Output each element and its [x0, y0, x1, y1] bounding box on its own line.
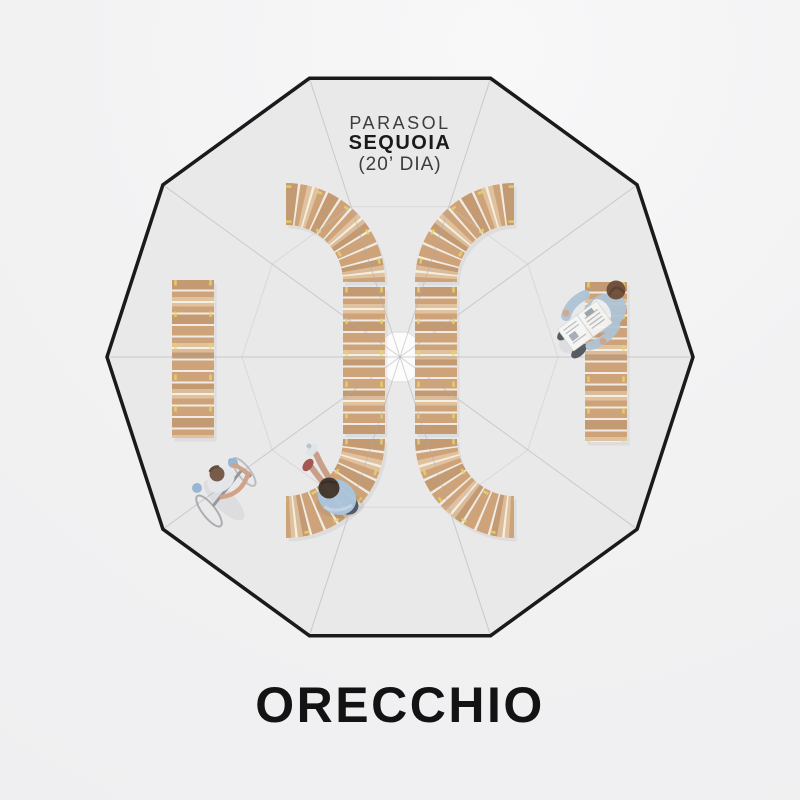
- reader-hand: [600, 338, 607, 345]
- parasol-label: PARASOL SEQUOIA (20’ DIA): [0, 113, 800, 175]
- reader-hand: [563, 310, 570, 317]
- cyclist-sleeve: [192, 483, 202, 493]
- parasol-label-line2: SEQUOIA: [0, 133, 800, 154]
- parasol-label-line3: (20’ DIA): [0, 154, 800, 175]
- poster-canvas: PARASOL SEQUOIA (20’ DIA) ORECCHIO: [0, 0, 800, 800]
- seated-person-shoe-toe: [307, 444, 312, 449]
- parasol-label-line1: PARASOL: [0, 113, 800, 133]
- product-title: ORECCHIO: [0, 676, 800, 734]
